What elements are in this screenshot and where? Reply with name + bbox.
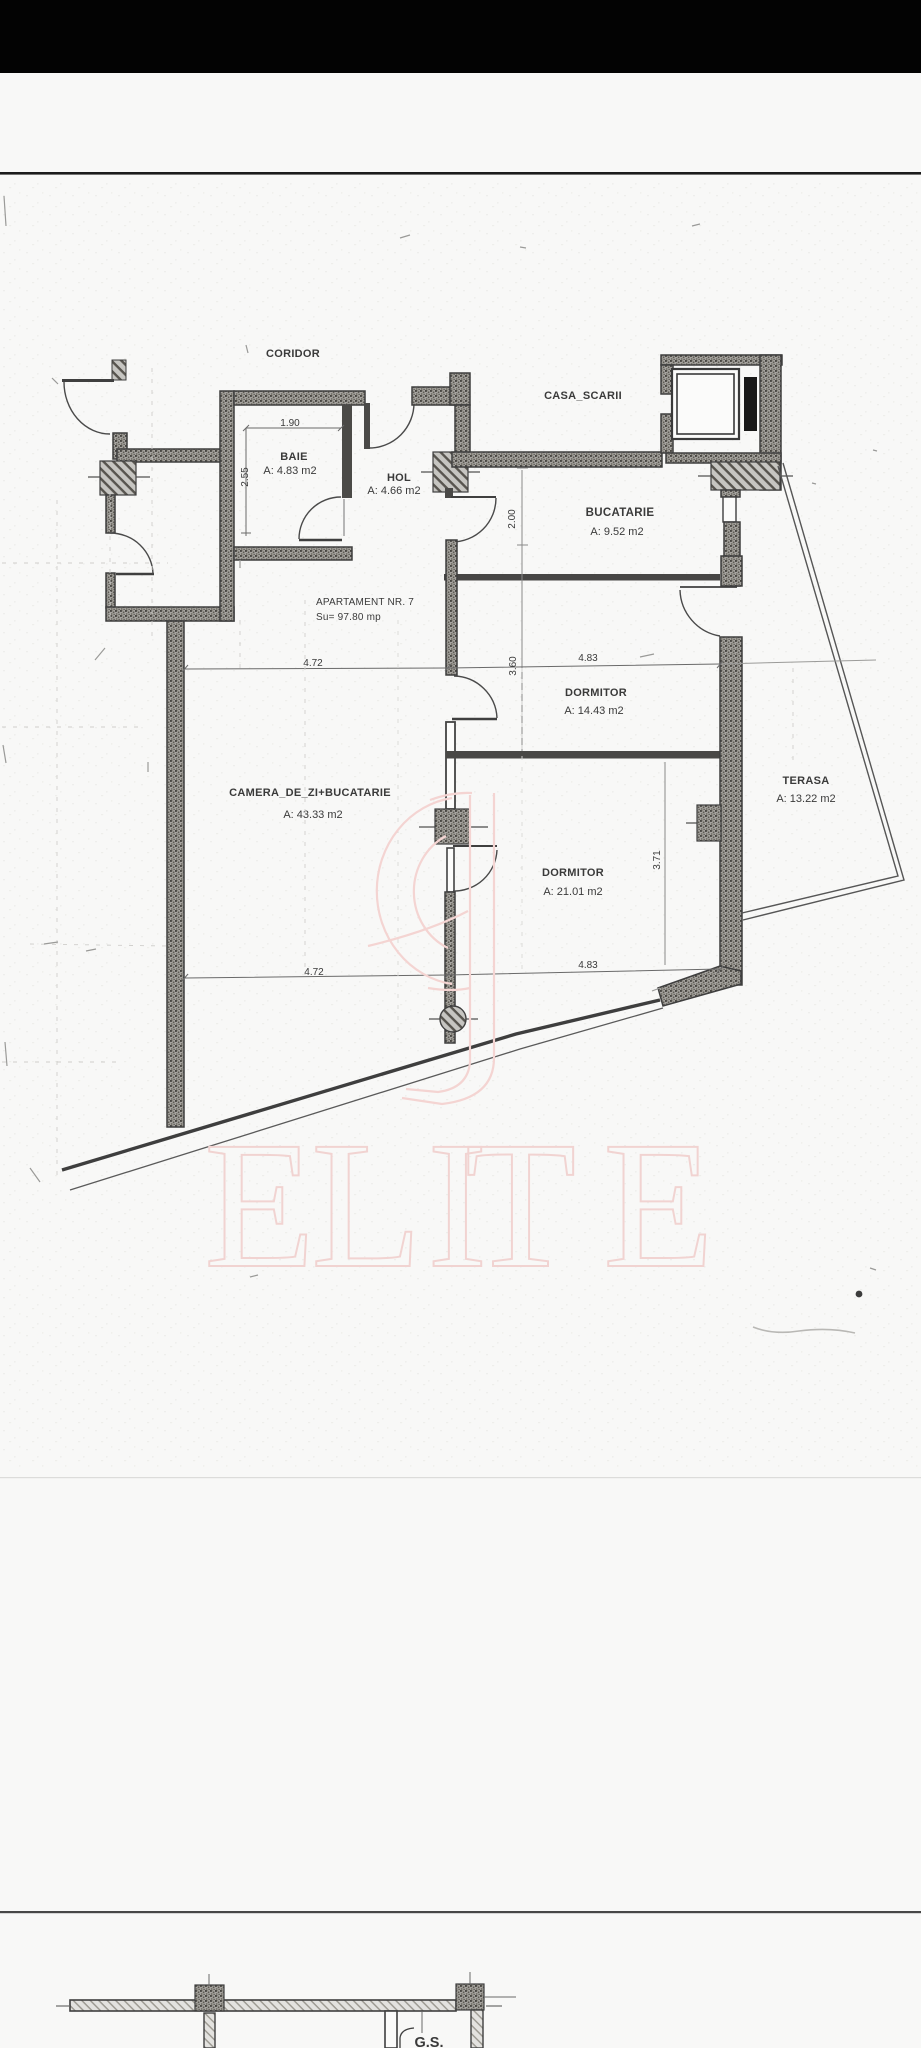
svg-text:2.55: 2.55: [240, 467, 251, 487]
svg-text:A: 43.33 m2: A: 43.33 m2: [283, 809, 342, 821]
svg-text:L: L: [311, 1105, 422, 1306]
svg-text:Su= 97.80 mp: Su= 97.80 mp: [316, 612, 381, 623]
svg-text:1.90: 1.90: [280, 418, 300, 429]
svg-text:3.71: 3.71: [652, 850, 663, 870]
svg-text:A: 9.52 m2: A: 9.52 m2: [590, 526, 643, 538]
svg-text:BUCATARIE: BUCATARIE: [586, 507, 655, 519]
svg-text:CORIDOR: CORIDOR: [266, 348, 320, 360]
svg-text:TERASA: TERASA: [782, 775, 829, 787]
svg-text:G.S.: G.S.: [414, 2035, 443, 2048]
svg-text:4.83: 4.83: [578, 960, 598, 971]
svg-text:A: 4.66 m2: A: 4.66 m2: [367, 485, 420, 497]
svg-text:A: 13.22 m2: A: 13.22 m2: [776, 793, 835, 805]
svg-text:DORMITOR: DORMITOR: [542, 867, 604, 879]
svg-text:3.60: 3.60: [508, 656, 519, 676]
svg-text:4.83: 4.83: [578, 653, 598, 664]
svg-text:E: E: [204, 1105, 315, 1306]
svg-text:4.72: 4.72: [303, 658, 323, 669]
svg-text:A: 14.43 m2: A: 14.43 m2: [564, 705, 623, 717]
svg-text:T: T: [465, 1105, 576, 1306]
svg-text:4.72: 4.72: [304, 967, 324, 978]
svg-text:E: E: [603, 1105, 714, 1306]
svg-text:BAIE: BAIE: [280, 451, 307, 463]
svg-text:DORMITOR: DORMITOR: [565, 687, 627, 699]
svg-text:2.00: 2.00: [507, 509, 518, 529]
svg-text:CAMERA_DE_ZI+BUCATARIE: CAMERA_DE_ZI+BUCATARIE: [229, 787, 391, 799]
svg-text:A: 21.01 m2: A: 21.01 m2: [543, 886, 602, 898]
svg-text:HOL: HOL: [387, 472, 411, 484]
svg-text:A: 4.83 m2: A: 4.83 m2: [263, 465, 316, 477]
svg-text:APARTAMENT NR. 7: APARTAMENT NR. 7: [316, 597, 414, 608]
svg-text:CASA_SCARII: CASA_SCARII: [544, 390, 622, 402]
